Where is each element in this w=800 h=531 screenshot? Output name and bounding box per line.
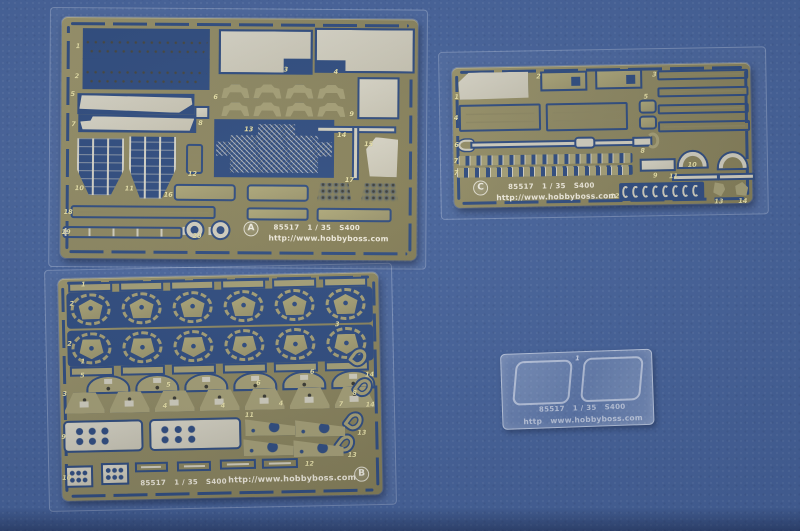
mat-edge-shadow	[0, 507, 800, 531]
pe-part	[202, 377, 210, 382]
bar-part	[174, 366, 214, 373]
triangle-part	[199, 389, 239, 411]
large-panel-part	[315, 28, 415, 74]
part-number-label: 3	[652, 71, 657, 78]
part-number-label: 2	[67, 341, 72, 348]
c-clip-part	[672, 185, 679, 197]
hinge-plate-part	[101, 463, 129, 486]
part-number-label: 4	[454, 115, 459, 122]
fret-letter-badge: B	[354, 467, 369, 482]
triangle-part	[289, 387, 329, 409]
pe-part	[472, 141, 634, 147]
fret-letter-badge: C	[473, 180, 488, 195]
pe-part	[639, 115, 657, 129]
dome-arc-part	[137, 376, 177, 392]
part-number-label: 16	[164, 192, 173, 199]
part-number-label: 6	[454, 142, 459, 149]
part-number-label: 2	[536, 73, 541, 80]
d-ring-part	[182, 221, 230, 241]
bracket-part	[221, 84, 249, 98]
part-number-label: 18	[64, 209, 73, 216]
perforated-strip-part	[82, 58, 209, 90]
clear-film-sheet: 1 855171 / 35S400 http www.hobbyboss.com	[500, 349, 655, 430]
pe-part	[576, 139, 593, 147]
c-clip-part	[692, 185, 699, 197]
strip-part	[658, 103, 749, 115]
part-number-label: 6	[256, 380, 261, 387]
bar-part	[72, 368, 112, 375]
part-number-label: 13	[357, 430, 366, 437]
pe-part	[85, 60, 208, 88]
part-number-label: 1	[81, 281, 86, 288]
part-number-label: 8	[198, 120, 203, 127]
part-number-label: 14	[365, 371, 374, 378]
part-number-label: 13	[714, 198, 723, 205]
kit-number-text: 85517	[508, 183, 534, 191]
pe-part	[104, 379, 112, 384]
bracket-part	[317, 103, 345, 117]
part-number-label: 5	[166, 382, 171, 389]
part-number-label: 13	[244, 126, 253, 133]
kit-info-text: 855171 / 35S400	[140, 478, 227, 488]
c-clip-strip	[619, 182, 704, 201]
pe-part	[595, 69, 642, 90]
scale-text: 1 / 35	[174, 478, 198, 486]
large-panel-part	[458, 72, 528, 100]
part-number-label: 5	[70, 91, 75, 98]
strip-part	[262, 458, 298, 469]
pe-fret-c: 1 2 3 4 5 6 7 7 8 9 10 11 12 13 14 C 855…	[452, 63, 752, 208]
gusset-part	[245, 416, 295, 436]
pe-part	[571, 77, 580, 86]
bracket-part	[253, 102, 281, 116]
part-number-label: 4	[334, 69, 339, 76]
bracket-part	[253, 84, 281, 98]
strip-part	[220, 459, 256, 470]
d-ring-part	[212, 222, 228, 238]
linked-parts-strip	[457, 165, 633, 178]
website-url-text: http www.hobbyboss.com	[523, 413, 643, 426]
bar-part	[223, 281, 263, 288]
part-number-label: 11	[245, 412, 254, 419]
fret-letter-badge: A	[243, 221, 258, 236]
strip-part	[135, 462, 168, 473]
pe-part	[158, 425, 198, 445]
part-number-label: 3	[335, 321, 340, 328]
part-number-label: 5	[643, 94, 648, 101]
part-number-label: 9	[349, 111, 354, 118]
part-number-label: 6	[213, 94, 218, 101]
website-url-text: http://www.hobbyboss.com	[228, 473, 356, 485]
part-number-label: 4	[221, 403, 226, 410]
part-number-label: 2	[75, 73, 80, 80]
part-number-label: 8	[640, 148, 645, 155]
arc-part	[719, 153, 747, 168]
strip-part	[174, 184, 236, 201]
kit-info-text: 855171 / 35S400	[539, 403, 626, 414]
pe-part	[73, 426, 111, 446]
bar-part	[274, 280, 314, 287]
tread-plate-part	[214, 119, 334, 178]
pe-part	[317, 30, 413, 72]
part-number-label: 5	[80, 372, 85, 379]
strip-part	[62, 226, 182, 239]
linked-parts-strip	[459, 153, 633, 166]
tow-loop-part	[458, 140, 473, 151]
perforated-plate-part	[361, 183, 399, 202]
bar-part	[325, 279, 365, 286]
hinge-plate-part	[149, 417, 242, 451]
pe-part	[639, 99, 657, 113]
c-clip-part	[662, 185, 669, 197]
kit-name-text: S400	[574, 182, 595, 190]
part-number-label: 7	[454, 170, 459, 177]
perforated-plate-part	[317, 183, 352, 202]
photo: 1 2 3 4 5 6 7 8 9 10 11 12 13 14 15 16 1…	[0, 0, 800, 531]
c-clip-part	[652, 185, 659, 197]
strip-part	[177, 461, 211, 472]
part-number-label: 11	[669, 173, 678, 180]
strip-part	[317, 208, 392, 223]
part-number-label: 10	[62, 475, 71, 482]
hinge-plate-part	[63, 419, 144, 453]
pe-part	[153, 378, 161, 383]
mesh-grille-part	[129, 136, 176, 198]
pe-part	[640, 158, 676, 172]
strip-part	[657, 86, 748, 98]
part-number-label: 12	[188, 171, 197, 178]
part-number-label: 8	[352, 390, 357, 397]
kit-number-text: 85517	[140, 479, 166, 488]
pe-part	[125, 400, 134, 406]
part-number-label: 11	[125, 185, 134, 192]
part-number-label: 1	[575, 354, 580, 362]
strip-part	[658, 120, 750, 133]
medallion-row	[66, 286, 373, 328]
part-number-label: 1	[81, 358, 86, 365]
gusset-part	[243, 436, 293, 456]
c-clip-part	[642, 186, 649, 198]
pe-fret-b: 1 2 2 1 3 3 5 5 6 6 4 4 4 7 8 9 10 11 12…	[58, 272, 383, 501]
scale-text: 1 / 35	[573, 404, 597, 413]
part-number-label: 1	[454, 94, 459, 101]
part-number-label: 19	[61, 229, 70, 236]
bar-part	[172, 282, 212, 289]
part-number-label: 3	[62, 391, 67, 398]
pe-part	[78, 114, 196, 133]
kit-name-text: S400	[339, 224, 360, 232]
fret-edge-slot	[69, 250, 407, 255]
dome-arc-part	[235, 373, 275, 389]
pe-part	[194, 106, 209, 119]
strip-part	[657, 69, 748, 81]
pe-part	[79, 95, 192, 113]
large-panel-part	[546, 102, 628, 131]
fret-edge-slot	[67, 275, 369, 284]
part-number-label: 6	[310, 369, 315, 376]
scale-text: 1 / 35	[542, 182, 566, 190]
triangle-part	[154, 390, 194, 412]
window-film-outline	[580, 356, 644, 402]
part-number-label: 10	[75, 185, 84, 192]
part-number-label: 9	[61, 434, 66, 441]
bar-part	[70, 284, 110, 291]
pe-part	[216, 121, 332, 176]
kit-number-text: 85517	[539, 405, 565, 414]
dome-arc-part	[88, 377, 128, 393]
part-number-label: 17	[345, 177, 354, 184]
pe-part	[713, 182, 725, 196]
perforated-strip-part	[83, 28, 210, 60]
part-number-label: 20	[192, 233, 201, 240]
pe-part	[354, 128, 357, 178]
kit-info-text: 855171 / 35S400	[274, 223, 361, 232]
triangle-part	[64, 392, 104, 414]
pe-fret-a: 1 2 3 4 5 6 7 8 9 10 11 12 13 14 15 16 1…	[60, 17, 418, 260]
window-film-outline	[512, 359, 573, 405]
pe-part	[80, 116, 194, 131]
kit-info-text: 855171 / 35S400	[508, 182, 595, 192]
pe-part	[77, 93, 194, 115]
strip-part	[71, 205, 216, 219]
part-number-label: 14	[366, 401, 375, 408]
part-number-label: 7	[339, 401, 344, 408]
pe-part	[170, 400, 179, 406]
part-number-label: 13	[348, 452, 357, 459]
medallion-row	[67, 324, 374, 366]
c-clip-part	[622, 186, 629, 198]
part-number-label: 7	[71, 121, 76, 128]
bracket-part	[285, 85, 313, 99]
kit-name-text: S400	[206, 478, 227, 486]
tow-rod-part	[458, 134, 654, 151]
pe-part	[540, 71, 587, 92]
part-number-label: 10	[688, 162, 697, 169]
pe-part	[720, 175, 753, 179]
bracket-part	[317, 85, 345, 99]
part-number-label: 9	[653, 172, 658, 179]
part-number-label: 7	[454, 158, 459, 165]
part-number-label: 15	[364, 141, 373, 148]
gusset-part	[293, 437, 343, 457]
part-number-label: 4	[163, 403, 168, 410]
part-number-label: 4	[279, 400, 284, 407]
kit-name-text: S400	[604, 403, 625, 412]
triangle-part	[109, 391, 149, 413]
pe-part	[674, 175, 717, 179]
bar-part	[225, 365, 265, 372]
large-panel-part	[459, 103, 541, 131]
part-number-label: 12	[305, 461, 314, 468]
pe-part	[85, 30, 208, 58]
pe-part	[349, 374, 357, 379]
pe-part	[305, 397, 314, 403]
large-panel-part	[357, 77, 399, 119]
pe-part	[626, 75, 635, 84]
pe-part	[69, 470, 88, 484]
part-number-label: 1	[76, 43, 81, 50]
kit-number-text: 85517	[274, 223, 300, 231]
pe-part	[260, 398, 269, 404]
bar-part	[123, 367, 163, 374]
scale-text: 1 / 35	[307, 224, 331, 232]
pe-part	[105, 467, 124, 481]
part-number-label: 14	[337, 132, 346, 139]
part-number-label: 14	[738, 198, 747, 205]
c-clip-part	[632, 186, 639, 198]
bracket-part	[285, 103, 313, 117]
large-panel-part	[219, 29, 313, 75]
pe-part	[300, 375, 308, 380]
pe-part	[221, 31, 311, 73]
gusset-part	[295, 417, 345, 437]
fret-edge-slot	[71, 22, 409, 27]
strip-part	[247, 184, 309, 201]
strip-part	[247, 207, 309, 220]
c-clip-part	[682, 185, 689, 197]
pe-part	[80, 401, 89, 407]
pe-part	[646, 132, 659, 148]
bar-part	[121, 283, 161, 290]
dome-arc-part	[186, 375, 226, 391]
website-url-text: http://www.hobbyboss.com	[268, 233, 388, 243]
part-number-label: 3	[284, 67, 289, 74]
part-number-label: 2	[69, 301, 74, 308]
dome-arc-part	[284, 372, 324, 388]
bracket-part	[221, 102, 249, 116]
